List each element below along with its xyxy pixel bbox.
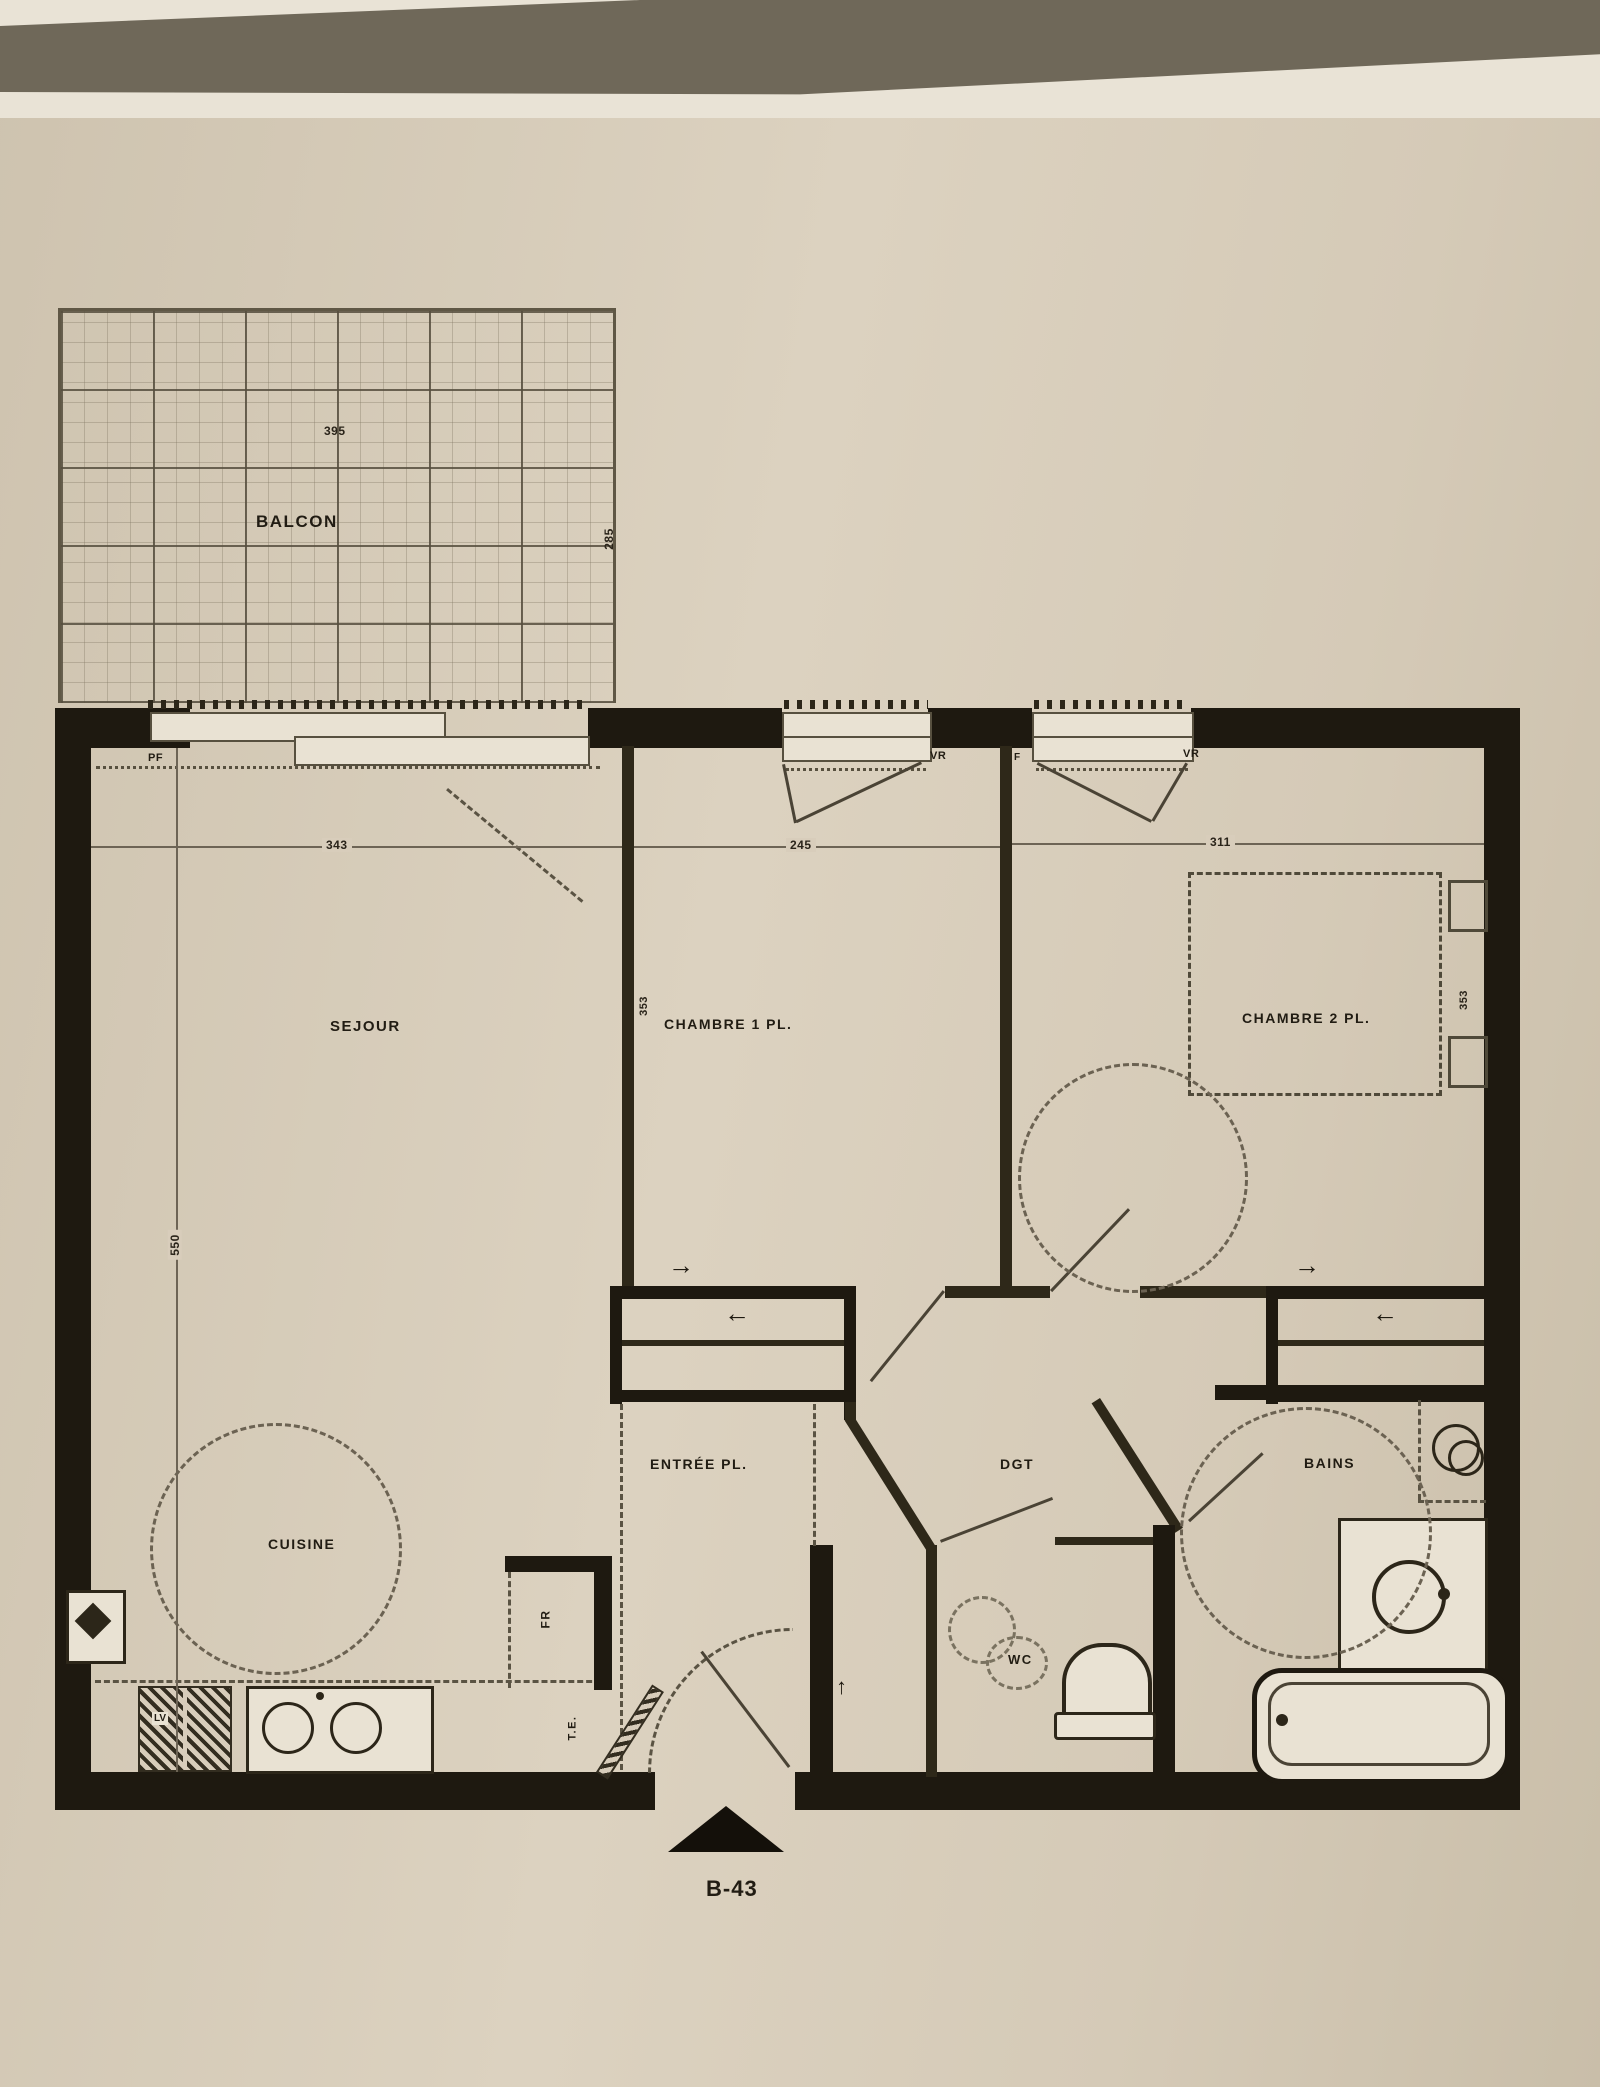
wall-chambre1-bottom [945, 1286, 1050, 1298]
wall-sejour-chambre1 [622, 746, 634, 1290]
closet1-left-wall [610, 1286, 622, 1404]
room-label-balcon: BALCON [256, 512, 338, 532]
chambre1-door-leaf [870, 1290, 945, 1382]
wall-bottom-left [55, 1772, 655, 1810]
chambre2-nightstand-top [1448, 880, 1488, 932]
chambre2-casement-leaf-b [1152, 762, 1188, 821]
wall-wc-top [1055, 1537, 1155, 1545]
closet1-divider [622, 1340, 844, 1346]
floorplan-photo: BALCON 395 285 PF VR F VR → ← → ← [0, 0, 1600, 2087]
dishwasher-gap [183, 1688, 187, 1766]
unit-number: B-43 [706, 1876, 758, 1902]
chambre2-window-tick-band [1034, 700, 1190, 709]
dim-chambre2-depth: 353 [1458, 986, 1470, 1014]
dimline-chambre1 [634, 846, 1000, 848]
chambre2-turning-circle [1018, 1063, 1248, 1293]
tag-dishwasher: LV [152, 1712, 168, 1725]
tag-vr-chambre2: VR [1183, 748, 1199, 760]
dim-chambre2-width: 311 [1206, 835, 1235, 849]
wc-door-leaf [940, 1497, 1053, 1543]
dim-chambre1-depth: 353 [638, 992, 650, 1020]
closet2-arrow-left-icon: ← [1372, 1300, 1398, 1326]
dimline-sejour [91, 846, 622, 848]
dim-balcon-width: 395 [320, 424, 350, 438]
wall-bains-left [1153, 1525, 1175, 1777]
duct-arrow-up-icon: ↑ [836, 1676, 847, 1698]
toilet-bowl [1062, 1643, 1152, 1723]
kitchen-counter-dashed-line [95, 1680, 610, 1683]
wall-wc-left [926, 1545, 937, 1777]
wall-bains-top [1215, 1385, 1484, 1400]
room-label-sejour: SEJOUR [330, 1018, 401, 1035]
room-label-wc: WC [1008, 1652, 1033, 1667]
tag-electrical-panel: T.E. [566, 1716, 578, 1741]
washbasin-tap-dot [1438, 1588, 1450, 1600]
tag-f-chambre2: F [1014, 752, 1021, 763]
sink-tap-dot [316, 1692, 324, 1700]
sink-bowl-right [330, 1702, 382, 1754]
tag-fridge: FR [539, 1610, 553, 1629]
room-label-bains: BAINS [1304, 1455, 1355, 1471]
closet1-arrow-left-icon: ← [724, 1300, 750, 1326]
wall-duct-left [810, 1545, 833, 1777]
sejour-window-sill-line [96, 766, 600, 769]
dimline-chambre2 [1012, 843, 1484, 845]
fridge-niche-dashed-left [508, 1572, 511, 1688]
dim-chambre1-width: 245 [786, 838, 816, 852]
wall-top-segment-right [1191, 708, 1520, 748]
dim-balcon-depth: 285 [602, 524, 616, 554]
towel-radiator-icon-inner [1448, 1440, 1484, 1476]
wall-top-segment-mid2 [928, 708, 1032, 748]
chambre2-nightstand-bottom [1448, 1036, 1488, 1088]
closet2-divider [1278, 1340, 1484, 1346]
bathtub-inner [1268, 1682, 1490, 1766]
closet1-right-wall [844, 1286, 856, 1420]
tag-pf: PF [148, 752, 163, 764]
bathtub-drain-dot [1276, 1714, 1288, 1726]
dimline-sejour-vert [176, 748, 178, 1772]
closet1-bottom-wall [610, 1390, 856, 1402]
chambre2-casement-leaf-a [1037, 762, 1152, 823]
fridge-niche-right-wall [594, 1556, 612, 1690]
wall-diagonal-dgt-bains [1092, 1398, 1183, 1533]
wall-diagonal-entree-wc [845, 1415, 936, 1551]
sink-bowl-left [262, 1702, 314, 1754]
chambre2-window-sill-line [1036, 768, 1188, 771]
entree-placard-dashed-right [813, 1404, 816, 1546]
wall-right [1484, 708, 1520, 1810]
closet2-arrow-right-icon: → [1294, 1252, 1320, 1278]
wall-stub-closet1-dgt [845, 1402, 856, 1420]
dim-sejour-width: 343 [322, 838, 352, 852]
dim-sejour-depth: 550 [168, 1230, 182, 1260]
room-label-cuisine: CUISINE [268, 1536, 335, 1552]
sejour-window-tick-band [148, 700, 586, 709]
bains-turning-circle [1180, 1407, 1432, 1659]
chambre2-bed-dashed [1188, 872, 1442, 1096]
entree-placard-dashed-left [620, 1404, 623, 1770]
tag-vr-chambre1: VR [930, 750, 946, 762]
toilet-base [1054, 1712, 1156, 1740]
room-label-chambre1: CHAMBRE 1 PL. [664, 1016, 792, 1032]
balcony-tile-grid [58, 308, 616, 703]
wall-chambre1-chambre2 [1000, 746, 1012, 1286]
closet1-arrow-right-icon: → [668, 1252, 694, 1278]
chambre1-window-tick-band [784, 700, 928, 709]
chambre1-window-frame-inner [782, 736, 932, 762]
wall-top-segment-mid1 [588, 708, 782, 748]
chambre2-window-frame-inner [1032, 736, 1194, 762]
chambre1-casement-leaf-b [782, 764, 797, 823]
room-label-entree: ENTRÉE PL. [650, 1456, 747, 1472]
room-label-dgt: DGT [1000, 1456, 1034, 1472]
entrance-marker-triangle [668, 1806, 784, 1852]
sejour-sliding-door-rail2 [294, 736, 590, 766]
room-label-chambre2: CHAMBRE 2 PL. [1242, 1010, 1370, 1026]
